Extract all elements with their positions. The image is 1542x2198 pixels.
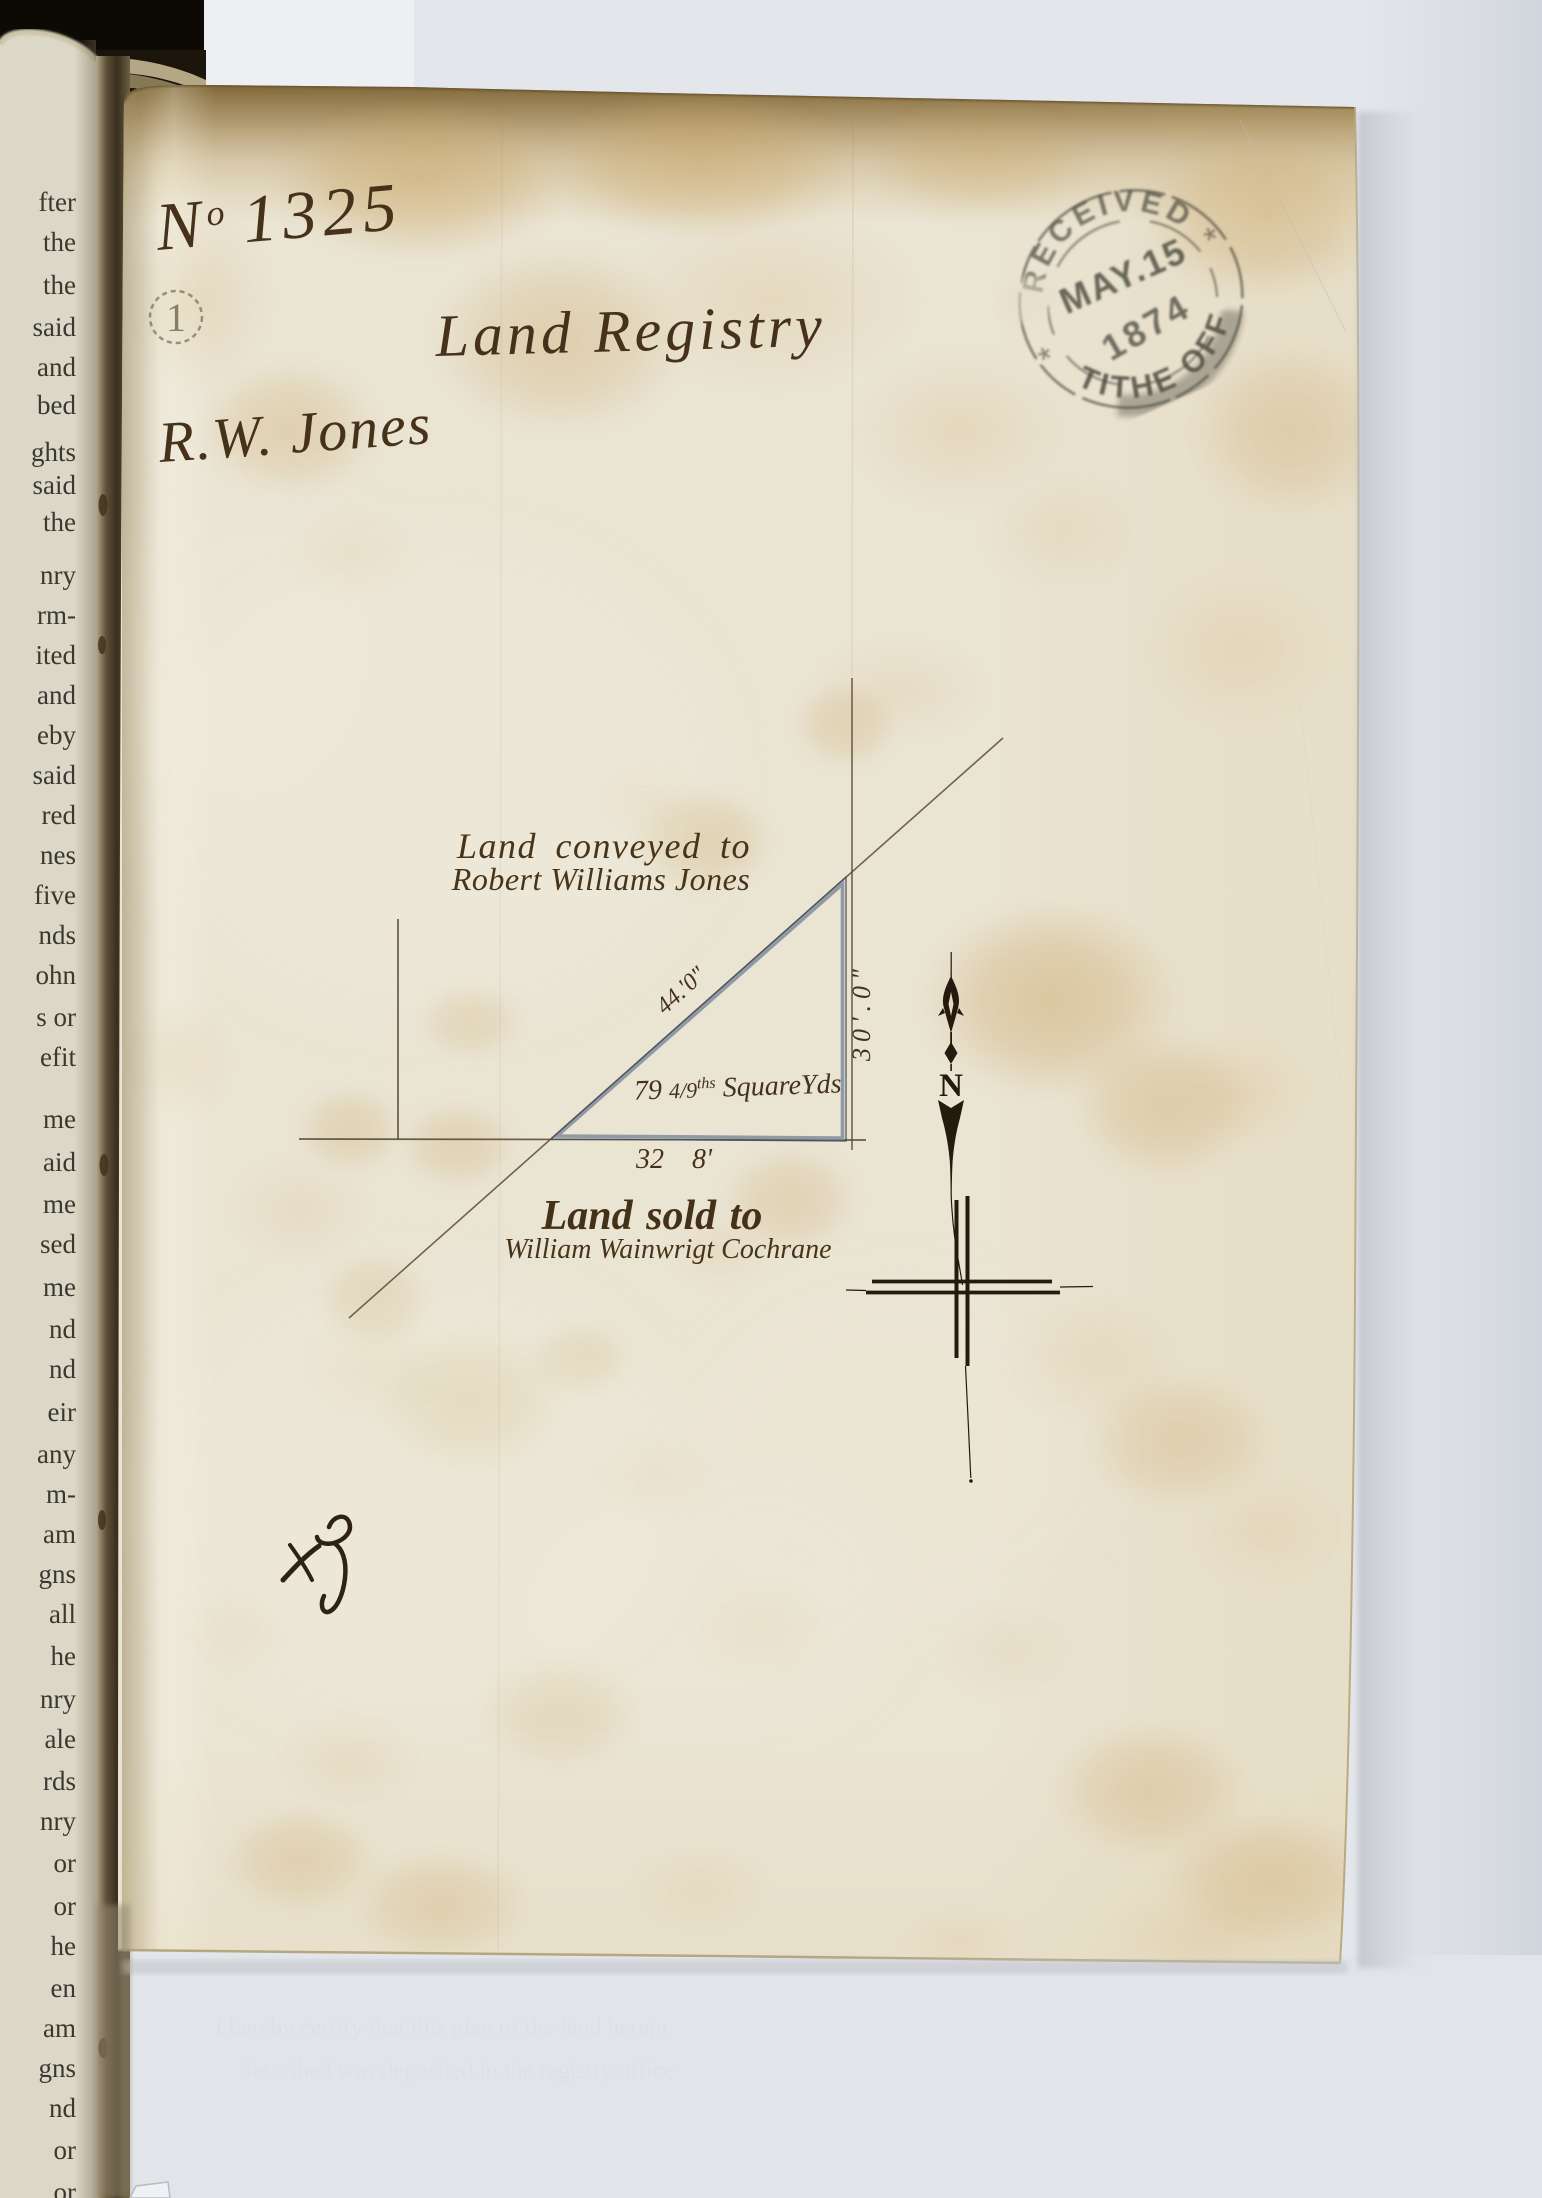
svg-text:en: en — [51, 1973, 77, 2003]
svg-text:eby: eby — [37, 720, 76, 750]
svg-text:the: the — [43, 270, 76, 300]
svg-text:sed: sed — [40, 1229, 76, 1259]
svg-text:I hereby certify that this pl: I hereby certify that this plan of the l… — [215, 2015, 668, 2041]
svg-text:nry: nry — [40, 560, 76, 590]
svg-text:ited: ited — [36, 640, 77, 670]
svg-text:Robert Williams Jones: Robert Williams Jones — [451, 861, 750, 897]
svg-text:said: said — [33, 470, 77, 500]
svg-text:gns: gns — [38, 2053, 76, 2083]
svg-text:red: red — [42, 800, 77, 830]
svg-text:nes: nes — [40, 840, 76, 870]
svg-text:any: any — [37, 1439, 76, 1469]
svg-text:me: me — [43, 1272, 76, 1302]
svg-text:described was deposited in: described was deposited in the registry … — [240, 2058, 674, 2084]
svg-text:nry: nry — [40, 1806, 76, 1836]
svg-text:ohn: ohn — [36, 960, 77, 990]
svg-text:N: N — [939, 1068, 963, 1104]
svg-text:aid: aid — [43, 1147, 76, 1177]
svg-text:ghts: ghts — [31, 437, 76, 467]
svg-text:and: and — [37, 352, 76, 382]
svg-text:nd: nd — [49, 2093, 77, 2123]
svg-text:or: or — [54, 2177, 77, 2198]
svg-text:he: he — [51, 1931, 77, 1961]
svg-text:nry: nry — [40, 1684, 76, 1714]
svg-text:nd: nd — [49, 1314, 77, 1344]
svg-text:32 8': 32 8' — [635, 1144, 713, 1175]
svg-text:said: said — [33, 312, 77, 342]
svg-text:and: and — [37, 680, 76, 710]
svg-text:am: am — [43, 2013, 76, 2043]
svg-text:Land Registry: Land Registry — [434, 293, 827, 369]
svg-text:efit: efit — [40, 1042, 76, 1072]
svg-text:me: me — [43, 1104, 76, 1134]
svg-text:eir: eir — [48, 1397, 76, 1427]
svg-text:five: five — [34, 880, 76, 910]
svg-text:rds: rds — [43, 1766, 76, 1796]
svg-text:1: 1 — [166, 295, 186, 340]
svg-text:William Wainwrigt Cochrane: William Wainwrigt Cochrane — [504, 1234, 831, 1265]
svg-text:or: or — [54, 1891, 77, 1921]
svg-text:me: me — [43, 1189, 76, 1219]
svg-text:bed: bed — [37, 390, 76, 420]
svg-text:Land sold to: Land sold to — [541, 1193, 763, 1239]
svg-text:the: the — [43, 507, 76, 537]
svg-text:am: am — [43, 1519, 76, 1549]
svg-text:or: or — [54, 2135, 77, 2165]
svg-text:nds: nds — [38, 920, 76, 950]
svg-text:he: he — [51, 1641, 77, 1671]
svg-text:nd: nd — [49, 1354, 77, 1384]
svg-text:the: the — [43, 227, 76, 257]
svg-text:said: said — [33, 760, 77, 790]
svg-text:or: or — [54, 1848, 77, 1878]
svg-text:ale: ale — [45, 1724, 76, 1754]
svg-text:m-: m- — [46, 1479, 76, 1509]
svg-text:fter: fter — [39, 187, 76, 217]
svg-text:Land conveyed to: Land conveyed to — [456, 826, 751, 866]
svg-text:rm-: rm- — [37, 600, 76, 630]
svg-text:s or: s or — [36, 1002, 76, 1032]
svg-text:gns: gns — [38, 1559, 76, 1589]
svg-text:all: all — [49, 1599, 76, 1629]
svg-text:30'.0": 30'.0" — [847, 963, 876, 1062]
